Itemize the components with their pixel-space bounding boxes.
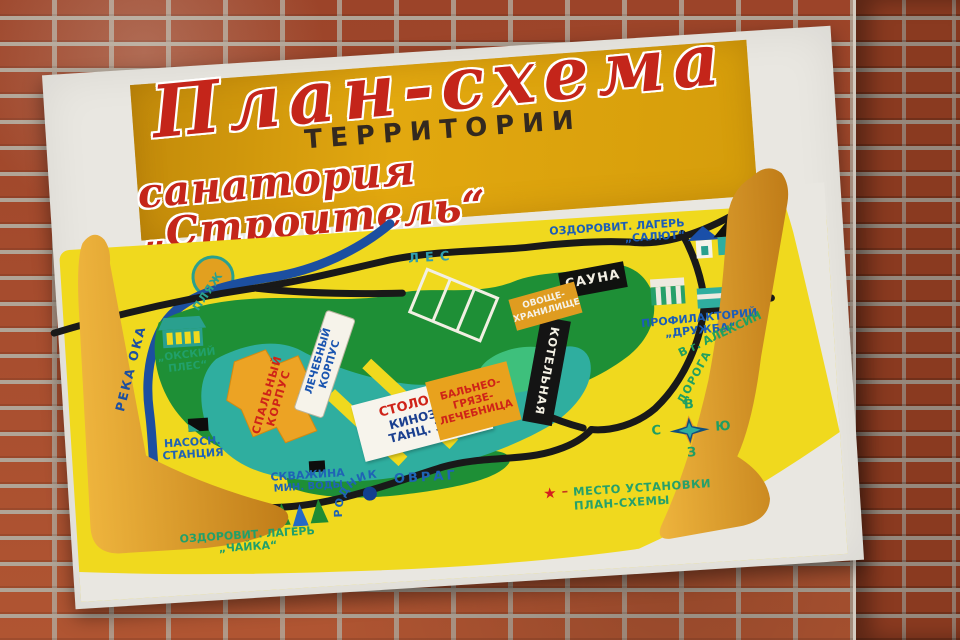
- prophylactory-icons: [650, 275, 728, 312]
- board-right-edge: [778, 182, 840, 436]
- okskiy-ples-pavilion-icon: [157, 316, 207, 349]
- compass-east: В: [683, 397, 694, 413]
- map-panel: РОДНИК ★ ЛЕС РЕКА ОКА ПЛЯЖ „ОКСКИЙ ПЛЕС“…: [59, 202, 848, 602]
- compass-rose: В С Ю З: [650, 397, 730, 464]
- banner: План-схема ТЕРРИТОРИИ санатория „Строите…: [130, 40, 758, 241]
- brick-pillar: [853, 0, 960, 640]
- sign-board: План-схема ТЕРРИТОРИИ санатория „Строите…: [42, 26, 864, 610]
- compass-west: З: [687, 445, 697, 461]
- compass-north: С: [651, 423, 661, 439]
- legend-star-icon: ★: [543, 486, 557, 502]
- compass-south: Ю: [715, 419, 731, 435]
- forest-label: ЛЕС: [408, 250, 456, 267]
- compass-star-icon: [667, 412, 713, 449]
- pump-station-icon: [188, 418, 209, 432]
- photo-scene: План-схема ТЕРРИТОРИИ санатория „Строите…: [0, 0, 960, 640]
